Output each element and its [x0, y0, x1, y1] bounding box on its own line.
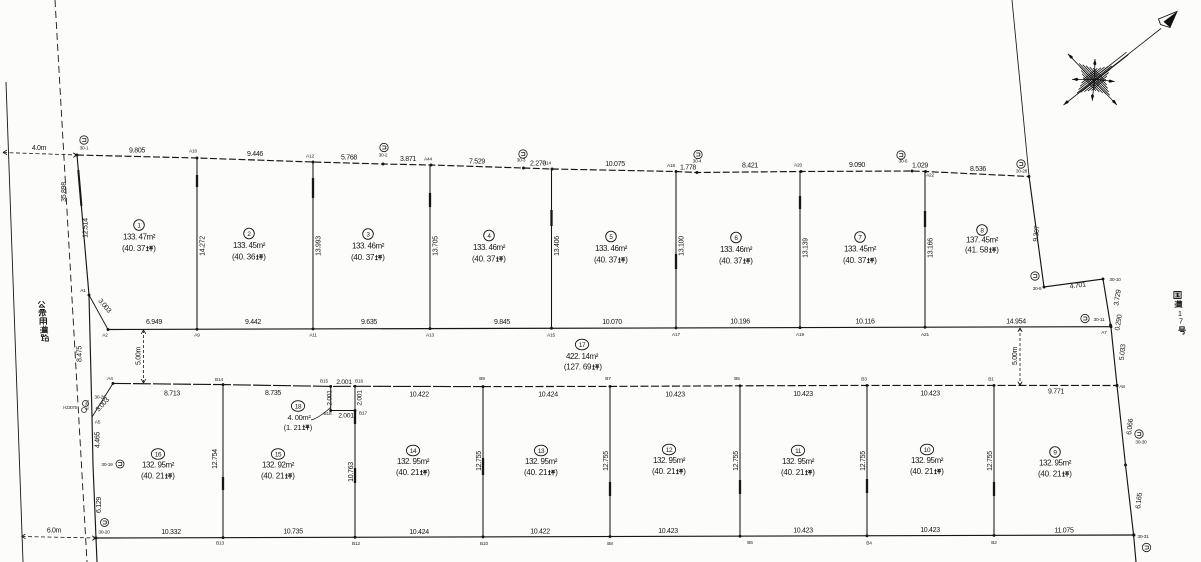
- svg-text:10.116: 10.116: [855, 318, 874, 325]
- svg-text:132. 95m²: 132. 95m²: [1039, 459, 1072, 468]
- svg-text:422. 14m²: 422. 14m²: [566, 352, 599, 361]
- svg-text:(40. 21: (40. 21: [261, 472, 285, 481]
- svg-text:5.00m: 5.00m: [1012, 347, 1019, 365]
- svg-text:13.166: 13.166: [928, 238, 935, 258]
- svg-text:10.424: 10.424: [409, 529, 429, 536]
- svg-text:30-1: 30-1: [80, 146, 89, 152]
- svg-text:132. 95m²: 132. 95m²: [653, 456, 686, 465]
- svg-text:4. 00m²: 4. 00m²: [288, 413, 312, 422]
- svg-text:14.954: 14.954: [1006, 318, 1026, 325]
- svg-text:12.755: 12.755: [733, 451, 740, 471]
- svg-text:A7: A7: [1101, 330, 1107, 336]
- svg-text:1.029: 1.029: [912, 163, 928, 170]
- svg-text:4.465: 4.465: [95, 432, 102, 448]
- svg-text:133. 46m²: 133. 46m²: [595, 244, 628, 253]
- svg-text:(40. 21: (40. 21: [396, 468, 420, 477]
- svg-text:10.763: 10.763: [348, 462, 355, 482]
- svg-text:133. 47m²: 133. 47m²: [123, 233, 156, 242]
- svg-text:2.001: 2.001: [338, 412, 354, 419]
- svg-text:3.871: 3.871: [400, 156, 416, 163]
- svg-text:14: 14: [410, 448, 417, 455]
- svg-text:9.635: 9.635: [361, 319, 377, 326]
- svg-text:8.475: 8.475: [77, 346, 84, 362]
- svg-text:9.805: 9.805: [129, 148, 145, 155]
- svg-text:30-19: 30-19: [101, 462, 113, 468]
- svg-text:12.754: 12.754: [212, 449, 219, 469]
- svg-text:(40. 37: (40. 37: [594, 256, 618, 265]
- svg-text:13.993: 13.993: [316, 236, 323, 256]
- svg-text:B13: B13: [216, 541, 224, 547]
- svg-text:12.755: 12.755: [603, 451, 610, 471]
- svg-text:7.529: 7.529: [469, 159, 485, 166]
- svg-text:(40. 37: (40. 37: [472, 255, 496, 264]
- svg-text:30-3: 30-3: [517, 158, 526, 164]
- svg-text:10.423: 10.423: [920, 391, 940, 398]
- svg-text:133. 46m²: 133. 46m²: [720, 245, 753, 254]
- svg-text:10.332: 10.332: [161, 529, 181, 536]
- svg-text:18: 18: [295, 403, 302, 410]
- svg-text:B1: B1: [988, 377, 994, 383]
- svg-text:8.713: 8.713: [164, 390, 180, 397]
- svg-text:137. 45m²: 137. 45m²: [966, 236, 999, 245]
- svg-text:(40. 37: (40. 37: [719, 257, 743, 266]
- svg-text:12.755: 12.755: [987, 451, 994, 471]
- svg-text:15: 15: [275, 451, 282, 458]
- svg-text:(40. 21: (40. 21: [1038, 470, 1062, 479]
- svg-text:10.423: 10.423: [665, 391, 685, 398]
- svg-text:(40. 21: (40. 21: [652, 467, 676, 476]
- svg-text:5.768: 5.768: [341, 155, 357, 162]
- svg-text:10.196: 10.196: [730, 319, 750, 326]
- svg-text:13.100: 13.100: [679, 236, 686, 256]
- svg-text:12.755: 12.755: [476, 451, 483, 471]
- svg-text:4.0m: 4.0m: [32, 145, 47, 152]
- svg-text:13.705: 13.705: [433, 236, 440, 256]
- svg-text:6.949: 6.949: [146, 319, 162, 326]
- svg-text:133. 46m²: 133. 46m²: [352, 242, 385, 251]
- svg-text:(40. 37: (40. 37: [351, 253, 375, 262]
- svg-text:(127. 69: (127. 69: [564, 363, 592, 372]
- svg-text:8.421: 8.421: [742, 162, 758, 169]
- svg-text:30-10: 30-10: [1109, 277, 1121, 283]
- svg-text:13.406: 13.406: [554, 236, 561, 256]
- svg-text:A20: A20: [794, 163, 802, 169]
- svg-text:A11: A11: [309, 333, 317, 339]
- svg-text:(1. 21: (1. 21: [284, 423, 302, 432]
- svg-text:H23075: H23075: [63, 405, 77, 410]
- svg-text:B4: B4: [866, 541, 872, 547]
- svg-text:A10: A10: [189, 149, 197, 155]
- svg-text:10.423: 10.423: [658, 528, 678, 535]
- svg-text:A9: A9: [194, 333, 200, 339]
- svg-text:A1: A1: [80, 288, 86, 294]
- svg-text:B10: B10: [480, 541, 488, 547]
- svg-text:B9: B9: [479, 376, 485, 382]
- svg-text:30-6: 30-6: [899, 159, 908, 165]
- svg-text:9.771: 9.771: [1048, 389, 1064, 396]
- svg-text:12.514: 12.514: [83, 218, 90, 238]
- svg-text:A13: A13: [426, 333, 434, 339]
- svg-text:(40. 37: (40. 37: [843, 256, 867, 265]
- svg-text:8.735: 8.735: [265, 390, 281, 397]
- svg-text:12: 12: [666, 447, 673, 454]
- svg-text:(40. 21: (40. 21: [141, 472, 165, 481]
- svg-text:B3: B3: [861, 377, 867, 383]
- svg-text:30-11: 30-11: [1094, 317, 1105, 323]
- svg-text:10.075: 10.075: [605, 161, 625, 168]
- svg-text:30-26: 30-26: [94, 395, 106, 401]
- svg-text:5.00m: 5.00m: [136, 347, 143, 365]
- svg-text:30-2: 30-2: [379, 153, 388, 159]
- svg-text:30-30: 30-30: [1135, 440, 1147, 446]
- svg-text:17: 17: [579, 342, 586, 349]
- svg-text:(40. 21: (40. 21: [524, 468, 548, 477]
- svg-text:A19: A19: [796, 332, 804, 338]
- svg-text:10.423: 10.423: [793, 528, 813, 535]
- svg-text:10.422: 10.422: [409, 391, 429, 398]
- svg-text:30-4: 30-4: [693, 159, 702, 165]
- svg-text:133. 45m²: 133. 45m²: [844, 245, 877, 254]
- svg-text:10.423: 10.423: [793, 391, 813, 398]
- svg-text:A16: A16: [667, 163, 675, 169]
- svg-text:10: 10: [924, 447, 931, 454]
- svg-text:(40. 37: (40. 37: [122, 244, 146, 253]
- svg-text:10.424: 10.424: [538, 392, 558, 399]
- svg-text:B17: B17: [359, 411, 367, 417]
- svg-text:13: 13: [538, 448, 545, 455]
- svg-text:10.735: 10.735: [283, 528, 303, 535]
- svg-text:(40. 21: (40. 21: [910, 467, 934, 476]
- svg-text:30-9: 30-9: [1033, 286, 1042, 292]
- svg-text:A8: A8: [1119, 384, 1125, 390]
- svg-text:9.442: 9.442: [245, 319, 261, 326]
- svg-text:A4: A4: [107, 376, 113, 382]
- svg-text:A12: A12: [306, 154, 314, 160]
- svg-text:9.845: 9.845: [494, 319, 510, 326]
- svg-text:30-31: 30-31: [1137, 534, 1149, 540]
- svg-text:132. 92m²: 132. 92m²: [262, 461, 295, 470]
- svg-text:(40. 21: (40. 21: [781, 468, 805, 477]
- svg-text:30-28: 30-28: [1016, 169, 1028, 175]
- svg-text:B5: B5: [734, 376, 740, 382]
- svg-text:A14: A14: [543, 161, 551, 167]
- svg-text:132. 95m²: 132. 95m²: [397, 457, 430, 466]
- svg-text:B7: B7: [605, 376, 611, 382]
- svg-text:B16: B16: [355, 378, 363, 384]
- svg-text:2.001: 2.001: [336, 379, 352, 386]
- svg-text:12.755: 12.755: [860, 451, 867, 471]
- svg-text:16: 16: [155, 451, 162, 458]
- svg-text:(40. 36: (40. 36: [232, 253, 256, 262]
- svg-text:14.272: 14.272: [200, 236, 207, 256]
- svg-text:A44: A44: [424, 157, 432, 163]
- svg-text:B2: B2: [991, 540, 997, 546]
- svg-text:35.898: 35.898: [61, 182, 68, 202]
- svg-text:1.778: 1.778: [680, 165, 696, 172]
- svg-text:B12: B12: [352, 541, 360, 547]
- svg-text:9.446: 9.446: [247, 151, 263, 158]
- svg-text:7: 7: [1179, 317, 1183, 326]
- svg-text:9.090: 9.090: [849, 162, 865, 169]
- svg-text:A22: A22: [926, 173, 934, 179]
- svg-text:133. 46m²: 133. 46m²: [473, 243, 506, 252]
- svg-text:133. 45m²: 133. 45m²: [233, 241, 266, 250]
- svg-text:2.001: 2.001: [327, 390, 334, 406]
- svg-text:10.422: 10.422: [530, 528, 550, 535]
- svg-text:A2: A2: [102, 333, 108, 339]
- svg-text:2.001: 2.001: [357, 390, 364, 406]
- svg-text:(41. 58: (41. 58: [965, 246, 989, 255]
- svg-text:A17: A17: [672, 332, 680, 338]
- svg-text:8.536: 8.536: [970, 166, 986, 173]
- svg-text:10.423: 10.423: [920, 527, 940, 534]
- svg-text:132. 95m²: 132. 95m²: [142, 461, 175, 470]
- svg-text:132. 95m²: 132. 95m²: [525, 457, 558, 466]
- svg-text:A21: A21: [921, 332, 929, 338]
- svg-text:B15: B15: [320, 378, 328, 384]
- svg-text:A5: A5: [95, 420, 101, 426]
- svg-text:B14: B14: [215, 377, 223, 383]
- svg-text:6.129: 6.129: [96, 497, 103, 513]
- svg-text:132. 95m²: 132. 95m²: [782, 457, 815, 466]
- svg-text:11: 11: [795, 448, 802, 455]
- svg-text:132. 95m²: 132. 95m²: [911, 456, 944, 465]
- svg-text:B8: B8: [607, 541, 613, 547]
- svg-text:30-20: 30-20: [98, 530, 110, 536]
- svg-text:11.075: 11.075: [1054, 527, 1073, 534]
- svg-text:10.070: 10.070: [602, 319, 622, 326]
- svg-text:A15: A15: [547, 333, 555, 339]
- svg-text:B6: B6: [747, 540, 753, 546]
- svg-text:6.0m: 6.0m: [47, 528, 62, 535]
- svg-text:13.139: 13.139: [803, 238, 810, 258]
